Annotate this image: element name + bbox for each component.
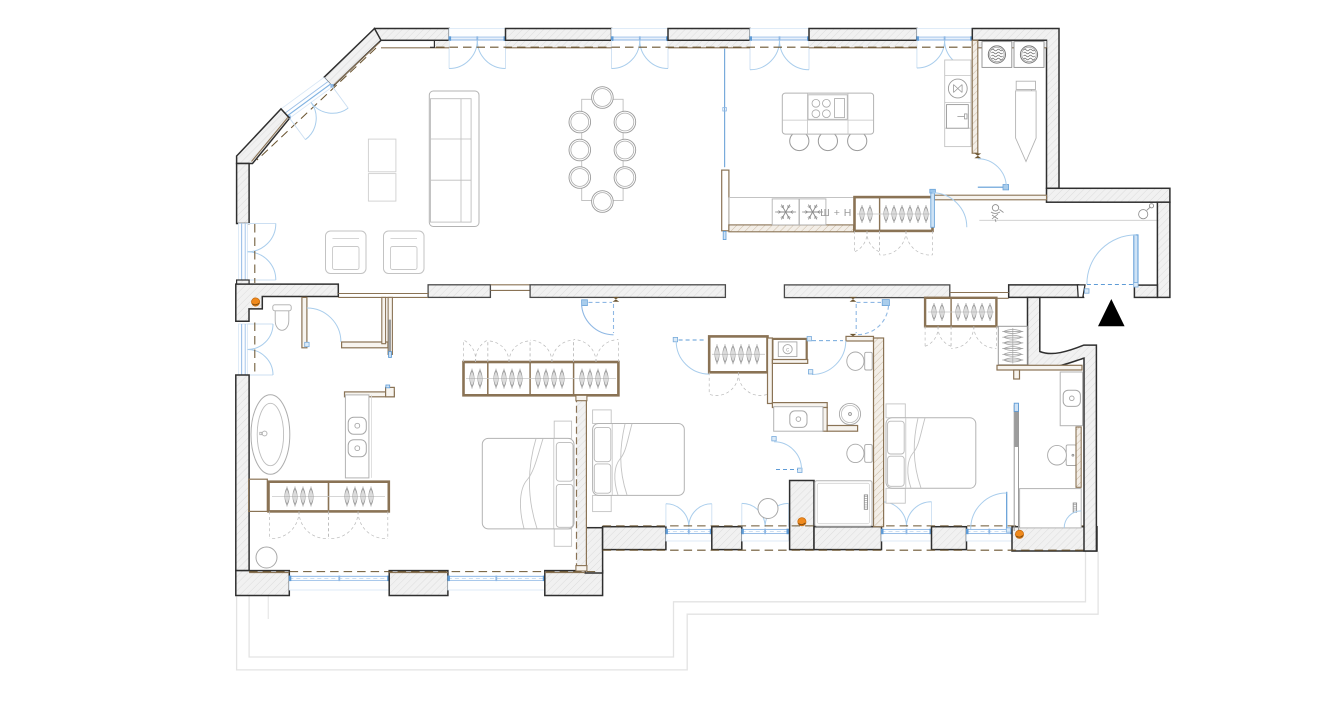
svg-text:Ш + H: Ш + H: [820, 207, 852, 219]
svg-text:c: c: [786, 348, 789, 354]
